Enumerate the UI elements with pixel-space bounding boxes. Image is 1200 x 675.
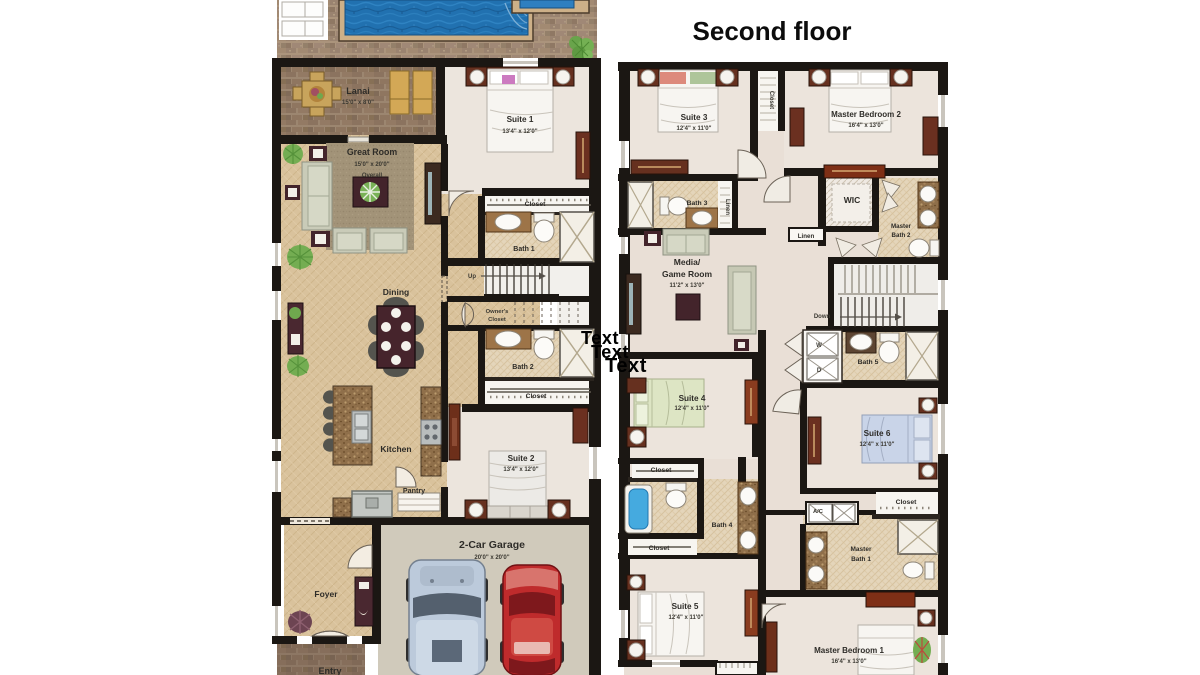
svg-text:12'4" x 11'0": 12'4" x 11'0": [669, 615, 704, 621]
svg-text:Bath 1: Bath 1: [513, 246, 535, 253]
svg-text:20'0" x 20'0": 20'0" x 20'0": [474, 555, 509, 561]
svg-text:12'4" x 11'0": 12'4" x 11'0": [677, 126, 712, 132]
svg-text:Closet: Closet: [526, 393, 548, 400]
svg-text:15'0" x 8'0": 15'0" x 8'0": [342, 100, 374, 106]
svg-text:Master: Master: [851, 546, 872, 553]
svg-text:Bath 1: Bath 1: [851, 556, 871, 563]
svg-text:Game Room: Game Room: [662, 269, 713, 279]
svg-text:Overall: Overall: [362, 173, 383, 179]
svg-text:Suite 2: Suite 2: [508, 454, 535, 463]
svg-text:2-Car Garage: 2-Car Garage: [459, 539, 525, 551]
svg-text:W: W: [816, 343, 822, 349]
svg-text:Master Bedroom 1: Master Bedroom 1: [814, 646, 884, 655]
svg-text:Bath 2: Bath 2: [892, 232, 911, 239]
svg-text:Suite 1: Suite 1: [507, 115, 534, 124]
svg-text:Foyer: Foyer: [314, 589, 338, 599]
svg-text:Second floor: Second floor: [693, 16, 852, 46]
svg-text:A/C: A/C: [813, 509, 824, 515]
svg-text:Media/: Media/: [674, 257, 701, 267]
svg-text:11'2" x 13'0": 11'2" x 13'0": [670, 283, 705, 289]
svg-text:Suite 5: Suite 5: [672, 602, 699, 611]
svg-text:Closet: Closet: [649, 545, 671, 552]
svg-text:Closet: Closet: [896, 499, 918, 506]
svg-text:WIC: WIC: [844, 195, 861, 205]
svg-text:Suite 6: Suite 6: [864, 429, 891, 438]
svg-text:Closet: Closet: [651, 467, 673, 474]
svg-text:Great Room: Great Room: [347, 147, 398, 157]
svg-text:12'4" x 11'0": 12'4" x 11'0": [675, 406, 710, 412]
svg-text:Kitchen: Kitchen: [380, 444, 411, 454]
svg-text:Pantry: Pantry: [403, 486, 425, 495]
svg-text:16'4" x 13'0": 16'4" x 13'0": [831, 659, 866, 665]
svg-text:Down: Down: [814, 314, 831, 320]
svg-text:Bath 4: Bath 4: [712, 522, 733, 529]
svg-text:Suite 4: Suite 4: [679, 394, 706, 403]
svg-text:Dining: Dining: [383, 287, 409, 297]
svg-text:Linen: Linen: [724, 199, 730, 215]
svg-text:15'0" x 20'0": 15'0" x 20'0": [354, 162, 389, 168]
svg-text:13'4" x 12'0": 13'4" x 12'0": [503, 467, 538, 473]
svg-text:Bath 3: Bath 3: [687, 200, 708, 207]
svg-text:Closet: Closet: [488, 317, 506, 323]
svg-text:16'4" x 13'0": 16'4" x 13'0": [848, 123, 883, 129]
svg-text:12'4" x 11'0": 12'4" x 11'0": [860, 442, 895, 448]
svg-text:Linen: Linen: [798, 233, 815, 240]
svg-text:Bath 2: Bath 2: [512, 364, 534, 371]
svg-text:Text: Text: [605, 355, 647, 377]
svg-text:Suite 3: Suite 3: [681, 113, 708, 122]
svg-text:Entry: Entry: [318, 666, 341, 675]
svg-text:13'4" x 12'0": 13'4" x 12'0": [502, 129, 537, 135]
svg-text:Bath 5: Bath 5: [858, 359, 879, 366]
svg-text:Owner's: Owner's: [486, 309, 509, 315]
svg-text:Up: Up: [468, 274, 476, 280]
svg-text:D: D: [817, 368, 822, 374]
svg-text:Master: Master: [891, 223, 912, 230]
svg-text:Lanai: Lanai: [346, 86, 370, 96]
svg-text:Master Bedroom 2: Master Bedroom 2: [831, 110, 901, 119]
svg-text:Closet: Closet: [768, 91, 774, 109]
svg-text:Closet: Closet: [525, 201, 547, 208]
